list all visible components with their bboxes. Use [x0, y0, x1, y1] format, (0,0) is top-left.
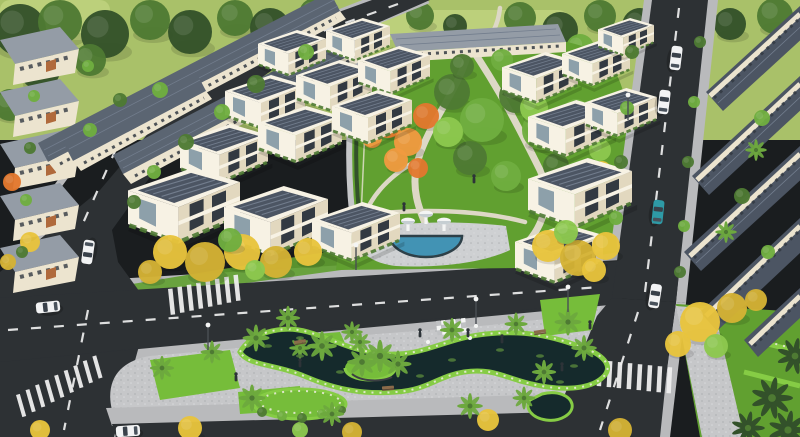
tree-highlight — [44, 6, 64, 26]
tree-highlight — [5, 175, 13, 183]
tree-highlight — [387, 151, 398, 162]
tree-highlight — [585, 261, 596, 272]
tree-highlight — [685, 307, 703, 325]
tree-highlight — [611, 213, 617, 219]
tree-highlight — [588, 4, 602, 18]
tree-highlight — [345, 425, 354, 434]
lily-pad — [296, 354, 304, 358]
tree-highlight — [248, 263, 257, 272]
tree-highlight — [508, 6, 522, 20]
tree-highlight — [565, 245, 581, 261]
tree-highlight — [756, 112, 763, 119]
tree-highlight — [298, 414, 303, 419]
lily-pad — [556, 380, 564, 384]
tree-highlight — [298, 242, 311, 255]
tree-highlight — [87, 16, 109, 38]
tree-highlight — [1, 11, 24, 34]
pergola-tile — [437, 330, 442, 335]
palm-tree — [513, 387, 536, 410]
palm-tree — [555, 309, 582, 336]
tree-highlight — [616, 157, 622, 163]
tree-highlight — [84, 61, 89, 66]
tree-highlight — [736, 190, 743, 197]
tree-highlight — [115, 95, 121, 101]
tree-highlight — [258, 408, 263, 413]
chair — [426, 340, 430, 344]
tree-highlight — [622, 103, 628, 109]
palm-tree — [243, 325, 270, 352]
tree-highlight — [707, 337, 718, 348]
tree-highlight — [676, 268, 681, 273]
tree-highlight — [690, 98, 695, 103]
lily-pad — [264, 344, 272, 348]
palm-tree — [320, 402, 344, 426]
tree-highlight — [294, 424, 301, 431]
bench — [382, 386, 394, 391]
tree-highlight — [748, 292, 758, 302]
pedestrian — [234, 372, 237, 381]
tree-highlight — [416, 106, 428, 118]
tree-highlight — [453, 57, 464, 68]
pergola-tile — [436, 321, 441, 326]
tree-highlight — [222, 5, 238, 21]
pedestrian — [466, 328, 469, 337]
tree-highlight — [129, 197, 135, 203]
tree-highlight — [495, 165, 509, 179]
tree-highlight — [249, 77, 257, 85]
tree-highlight — [762, 3, 778, 19]
lily-pad — [536, 354, 544, 358]
pergola-tile — [461, 318, 466, 323]
tree-highlight — [611, 421, 622, 432]
palm-tree — [532, 360, 556, 384]
tree-highlight — [411, 161, 420, 170]
aerial-villa-compound-render — [0, 0, 800, 437]
tree-highlight — [174, 16, 194, 36]
tree-highlight — [149, 167, 155, 173]
tree-highlight — [18, 248, 23, 253]
chair — [474, 324, 478, 328]
tree-highlight — [278, 412, 283, 417]
tree-highlight — [141, 263, 152, 274]
pedestrian — [560, 362, 563, 371]
tree-highlight — [763, 247, 769, 253]
tree-highlight — [30, 92, 35, 97]
tree-highlight — [157, 239, 172, 254]
tree-highlight — [181, 419, 192, 430]
tree-highlight — [221, 231, 232, 242]
tree-highlight — [2, 256, 9, 263]
lily-pad — [416, 374, 424, 378]
palm-tree — [745, 139, 767, 161]
tree-highlight — [78, 48, 92, 62]
tree-highlight — [536, 234, 550, 248]
palm-tree — [307, 331, 337, 361]
palm-tree — [276, 306, 300, 330]
pedestrian — [472, 174, 475, 183]
palm-tree — [505, 313, 528, 336]
tree-highlight — [180, 136, 187, 143]
palm-tree — [385, 351, 412, 378]
pedestrian — [402, 202, 405, 211]
tree-highlight — [190, 247, 208, 265]
tree-highlight — [22, 196, 27, 201]
palm-tree — [571, 335, 597, 361]
tree-highlight — [437, 121, 451, 135]
palm-tree — [349, 331, 371, 353]
tree-highlight — [23, 235, 32, 244]
lily-pad — [296, 336, 304, 340]
pedestrian — [588, 320, 591, 329]
tree-highlight — [668, 334, 680, 346]
lily-pad — [448, 358, 456, 362]
pergola-tile — [461, 323, 466, 328]
tree-highlight — [494, 52, 504, 62]
lily-pad — [570, 364, 578, 368]
tree-highlight — [721, 297, 735, 311]
tree-highlight — [627, 47, 633, 53]
palm-tree — [201, 341, 224, 364]
tree-highlight — [135, 5, 153, 23]
tree-highlight — [557, 223, 568, 234]
tree-highlight — [680, 222, 685, 227]
rendering-stage — [0, 0, 800, 437]
tree-highlight — [154, 84, 161, 91]
palm-tree — [715, 221, 737, 243]
palm-tree — [440, 318, 464, 342]
tree-highlight — [300, 46, 307, 53]
palm-tree — [457, 393, 483, 419]
tree-highlight — [696, 38, 701, 43]
tree-highlight — [446, 17, 457, 28]
palm-tree — [150, 356, 174, 380]
car — [116, 425, 141, 437]
pedestrian — [500, 334, 503, 343]
tree-highlight — [216, 106, 223, 113]
lily-pad — [496, 348, 504, 352]
tree-highlight — [85, 125, 91, 131]
tree-highlight — [33, 423, 42, 432]
tree-highlight — [264, 250, 278, 264]
tree-highlight — [480, 412, 490, 422]
tree-highlight — [718, 12, 732, 26]
tree-highlight — [684, 158, 689, 163]
pedestrian — [418, 328, 421, 337]
lily-pad — [336, 370, 344, 374]
tree-highlight — [439, 79, 455, 95]
palm-tree — [239, 385, 266, 412]
pedestrian — [298, 358, 301, 367]
tree-highlight — [26, 144, 31, 149]
tree-highlight — [596, 236, 609, 249]
tree-highlight — [466, 104, 486, 124]
